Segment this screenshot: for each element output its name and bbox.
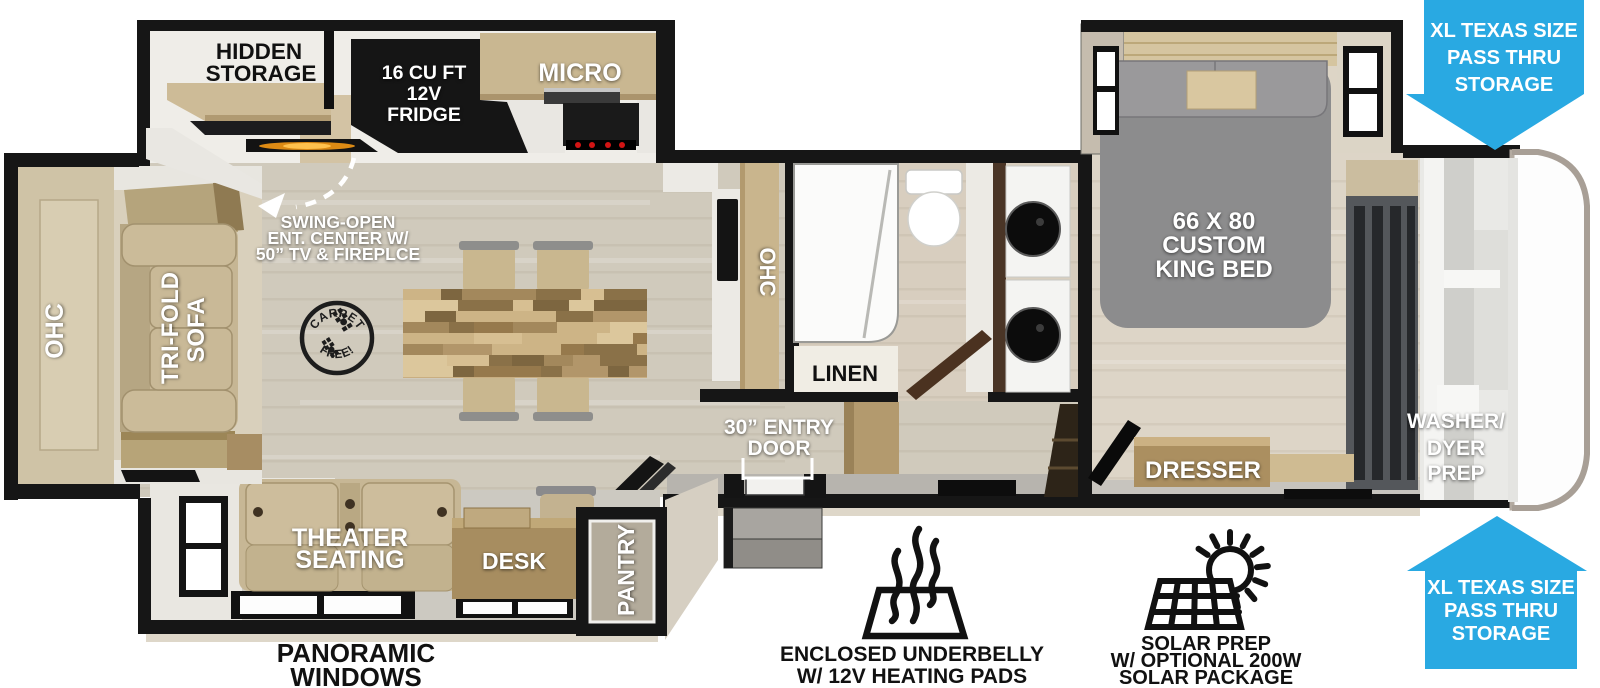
- svg-text:XL TEXAS SIZE: XL TEXAS SIZE: [1430, 20, 1577, 42]
- svg-text:SOFA: SOFA: [183, 297, 210, 362]
- svg-text:12V: 12V: [407, 83, 442, 105]
- svg-text:STORAGE: STORAGE: [206, 61, 317, 86]
- svg-text:16 CU FT: 16 CU FT: [382, 62, 467, 84]
- svg-text:30” ENTRY: 30” ENTRY: [724, 416, 834, 439]
- svg-text:STORAGE: STORAGE: [1452, 623, 1551, 645]
- svg-text:CUSTOM: CUSTOM: [1162, 232, 1266, 259]
- svg-text:DRESSER: DRESSER: [1145, 457, 1261, 484]
- svg-text:66 X 80: 66 X 80: [1173, 208, 1256, 235]
- svg-text:ENCLOSED UNDERBELLY: ENCLOSED UNDERBELLY: [780, 643, 1044, 666]
- svg-text:SEATING: SEATING: [295, 546, 404, 574]
- svg-text:PASS THRU: PASS THRU: [1447, 47, 1561, 69]
- svg-text:KING BED: KING BED: [1155, 256, 1272, 283]
- svg-text:STORAGE: STORAGE: [1455, 74, 1554, 96]
- svg-text:TRI-FOLD: TRI-FOLD: [157, 272, 184, 384]
- svg-text:WASHER/: WASHER/: [1407, 410, 1505, 433]
- svg-text:W/ 12V HEATING PADS: W/ 12V HEATING PADS: [797, 665, 1027, 688]
- svg-text:OHC: OHC: [41, 303, 69, 359]
- svg-text:DESK: DESK: [482, 548, 546, 574]
- svg-text:50” TV & FIREPLCE: 50” TV & FIREPLCE: [256, 244, 420, 264]
- svg-text:PANTRY: PANTRY: [613, 524, 639, 616]
- svg-text:WINDOWS: WINDOWS: [290, 662, 421, 688]
- svg-text:OHC: OHC: [755, 248, 780, 297]
- svg-text:DYER: DYER: [1427, 437, 1485, 460]
- svg-text:PASS THRU: PASS THRU: [1444, 600, 1558, 622]
- svg-text:FRIDGE: FRIDGE: [387, 104, 461, 126]
- svg-text:MICRO: MICRO: [538, 59, 621, 87]
- svg-text:PREP: PREP: [1427, 462, 1484, 485]
- svg-text:XL TEXAS SIZE: XL TEXAS SIZE: [1427, 577, 1574, 599]
- svg-text:LINEN: LINEN: [812, 361, 878, 386]
- svg-text:SOLAR PACKAGE: SOLAR PACKAGE: [1119, 667, 1293, 688]
- svg-text:DOOR: DOOR: [748, 437, 811, 460]
